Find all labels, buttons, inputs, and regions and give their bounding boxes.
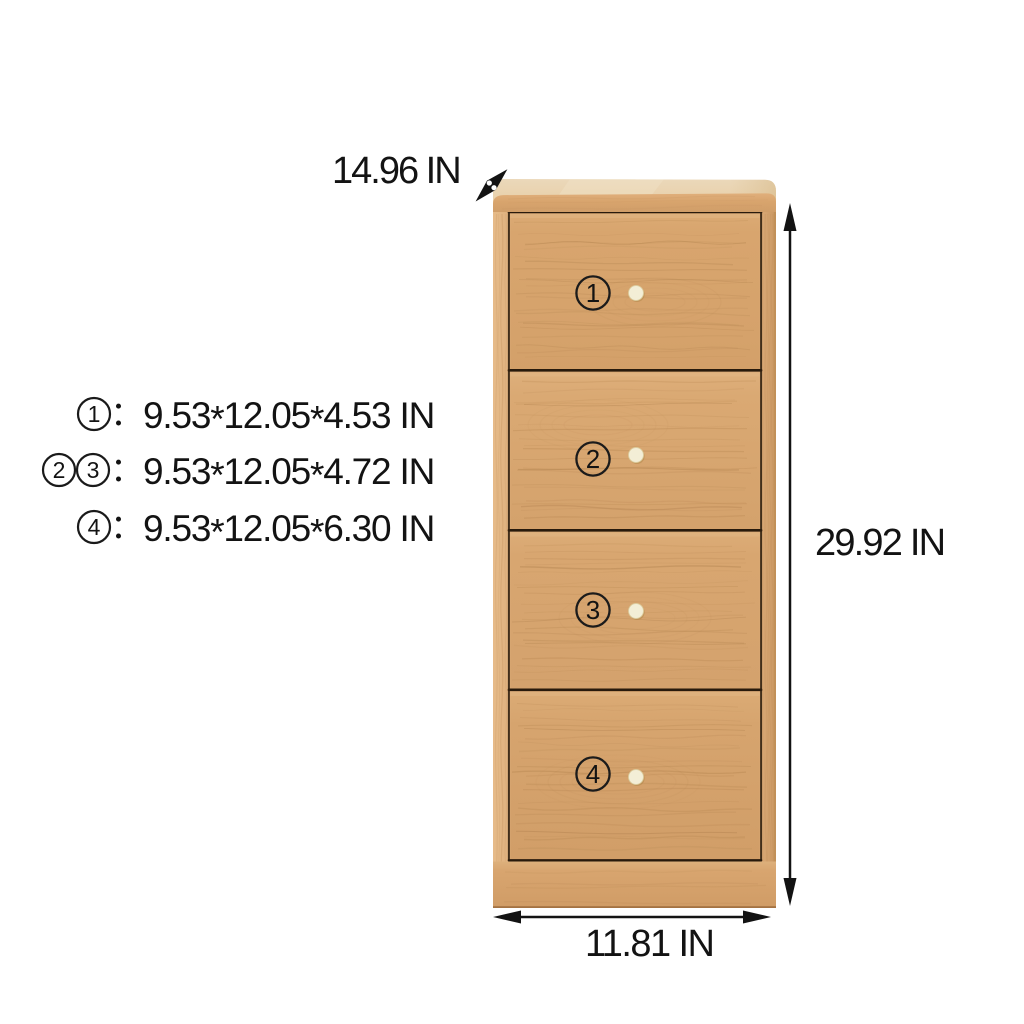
svg-text:1: 1 [586, 278, 600, 308]
svg-text:9.53*12.05*6.30 IN: 9.53*12.05*6.30 IN [143, 508, 434, 553]
svg-text:4: 4 [586, 759, 600, 789]
svg-text:2: 2 [53, 457, 66, 483]
svg-text:9.53*12.05*4.72 IN: 9.53*12.05*4.72 IN [143, 451, 434, 496]
svg-text:14.96 IN: 14.96 IN [332, 150, 460, 192]
svg-text:29.92 IN: 29.92 IN [815, 522, 944, 564]
svg-text:3: 3 [87, 457, 100, 483]
svg-text:1: 1 [88, 401, 101, 427]
svg-text:9.53*12.05*4.53 IN: 9.53*12.05*4.53 IN [143, 395, 434, 440]
svg-text:11.81 IN: 11.81 IN [585, 923, 713, 965]
svg-text:3: 3 [586, 595, 600, 625]
svg-text:4: 4 [88, 514, 101, 540]
svg-text:2: 2 [586, 444, 600, 474]
